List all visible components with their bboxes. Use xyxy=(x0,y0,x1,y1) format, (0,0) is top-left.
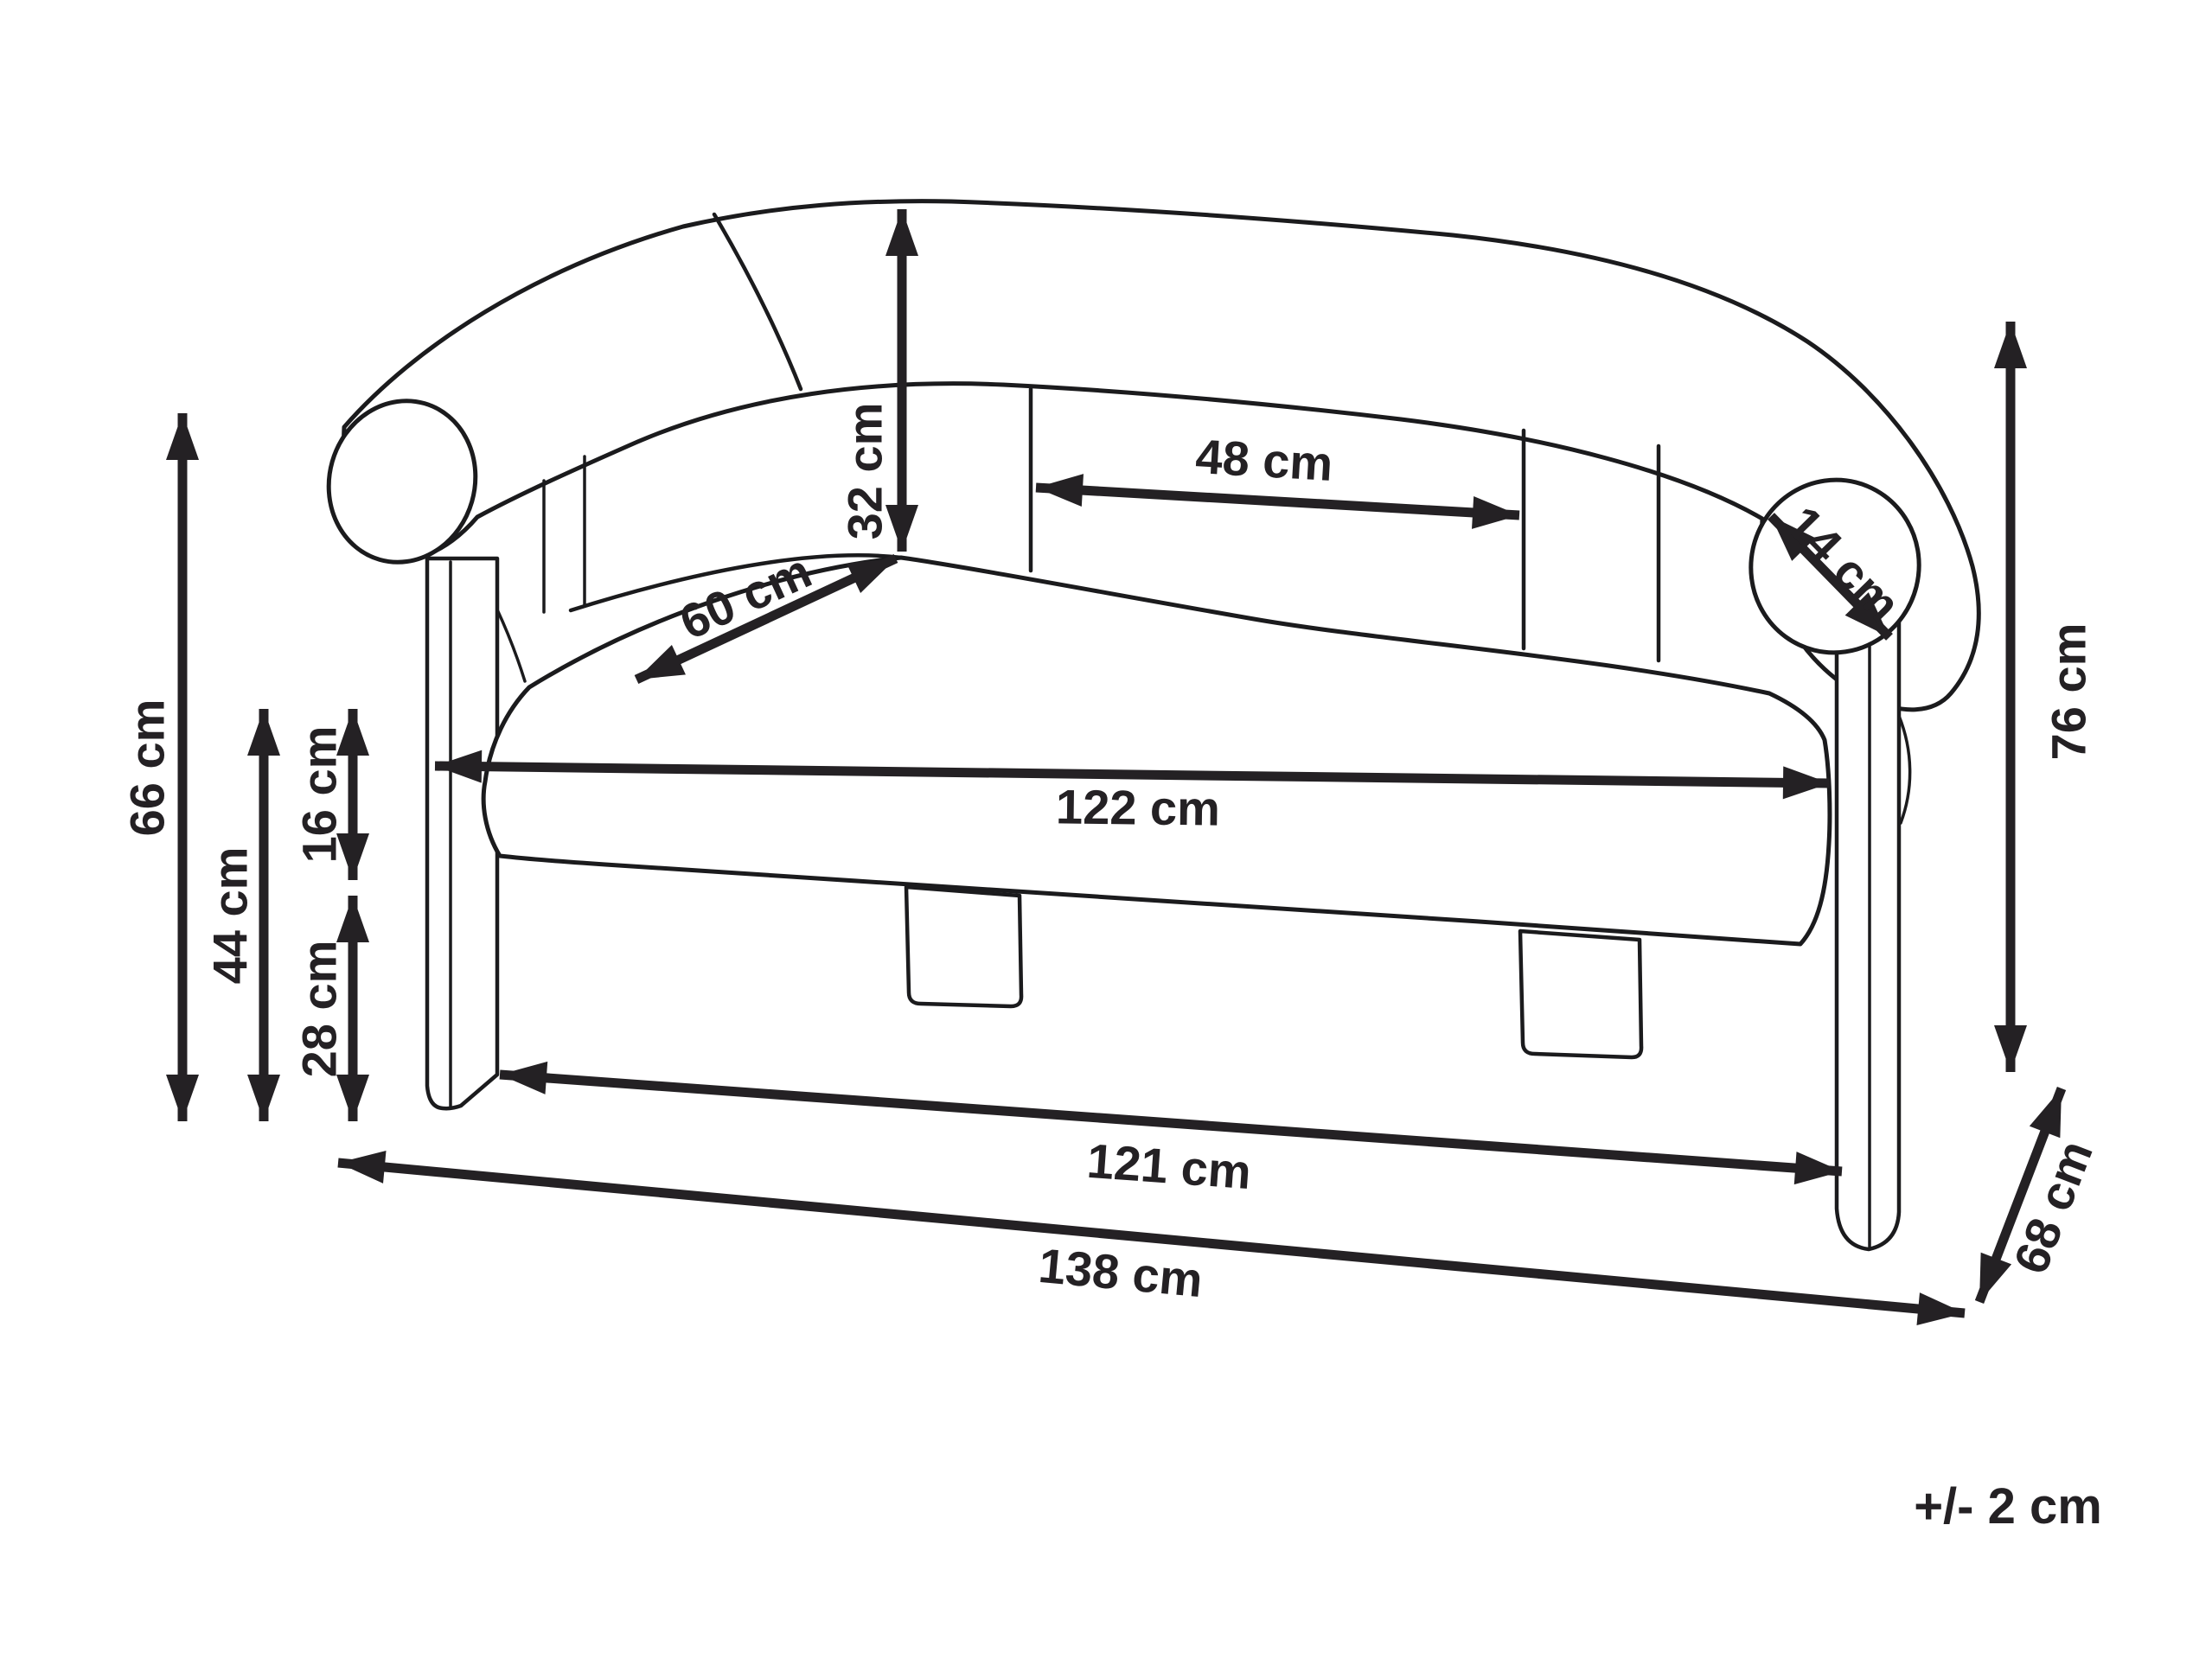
dim-overall-width-label: 138 cm xyxy=(1037,1238,1205,1307)
dim-underseat-clearance-label: 28 cm xyxy=(292,941,347,1078)
tolerance-note: +/- 2 cm xyxy=(1914,1478,2102,1535)
dim-overall-height-label: 76 cm xyxy=(2042,623,2096,761)
seat-foot-right xyxy=(1520,931,1641,1057)
diagram-canvas: 66 cm 44 cm 16 cm 28 cm 32 cm 48 cm 60 c… xyxy=(0,0,2212,1659)
dim-seat-width-label: 122 cm xyxy=(1056,779,1221,835)
dim-seat-thickness-label: 16 cm xyxy=(292,726,347,864)
left-front-leg xyxy=(427,558,497,1108)
dim-back-section-width-label: 48 cm xyxy=(1194,429,1334,491)
sofa-drawing xyxy=(310,201,1979,1249)
dim-back-height-label: 32 cm xyxy=(838,403,892,540)
right-front-leg xyxy=(1837,605,1899,1249)
dim-base-width-label: 121 cm xyxy=(1085,1133,1253,1199)
sofa-dimension-diagram: 66 cm 44 cm 16 cm 28 cm 32 cm 48 cm 60 c… xyxy=(0,0,2212,1659)
seat-foot-left xyxy=(906,887,1021,1006)
dim-back-section-width-arrow xyxy=(1036,488,1519,515)
dim-seat-height-label: 44 cm xyxy=(203,847,258,985)
dim-backrest-height-label: 66 cm xyxy=(120,699,175,837)
